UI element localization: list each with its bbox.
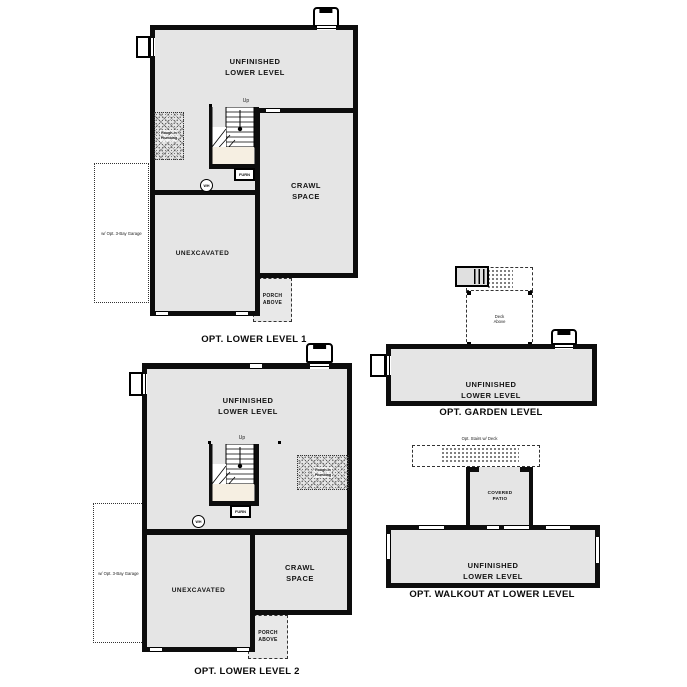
window bbox=[317, 25, 336, 30]
window bbox=[555, 344, 573, 349]
wall bbox=[142, 529, 352, 535]
opt-deck-strip bbox=[412, 445, 540, 467]
window bbox=[236, 311, 248, 316]
opt-garage-outline: w/ Opt. 3-Bay Garage bbox=[94, 163, 149, 303]
rough-in-label: Rough-In Plumbing bbox=[160, 130, 178, 141]
deck-above-label: Deck Above bbox=[494, 314, 506, 324]
room-label-covered-patio: COVERED PATIO bbox=[470, 490, 530, 503]
window bbox=[266, 108, 280, 113]
post-dot bbox=[209, 104, 212, 107]
window-well-icon bbox=[129, 372, 143, 396]
up-label: Up bbox=[230, 435, 254, 441]
window bbox=[487, 525, 499, 530]
wall bbox=[466, 467, 479, 472]
window bbox=[237, 647, 249, 652]
water-heater-label: WH bbox=[204, 184, 210, 188]
fireplace-icon bbox=[551, 329, 577, 345]
room-label-crawl: CRAWL SPACE bbox=[260, 563, 340, 585]
window-well-icon bbox=[136, 36, 150, 58]
water-heater-icon: WH bbox=[192, 515, 205, 528]
window bbox=[142, 374, 147, 394]
room-label-unexcavated: UNEXCAVATED bbox=[150, 249, 255, 258]
fireplace-icon bbox=[306, 343, 333, 363]
staircase-icon bbox=[209, 107, 259, 169]
deck-dots bbox=[441, 447, 519, 464]
rough-in-plumbing-area: Rough-In Plumbing bbox=[297, 455, 349, 490]
stairs-option-label: Opt. Stairs w/ Deck bbox=[437, 436, 522, 441]
deck-stairs-icon bbox=[455, 266, 489, 287]
floorplan-sheet: w/ Opt. 3-Bay Garage PORCH ABOVE Rou bbox=[0, 0, 687, 687]
deck-above-area: Deck Above bbox=[466, 290, 533, 347]
room-label-unfinished: UNFINISHED LOWER LEVEL bbox=[411, 380, 571, 402]
window bbox=[310, 363, 329, 369]
room-label-unexcavated: UNEXCAVATED bbox=[146, 586, 251, 595]
window-well-icon bbox=[370, 354, 386, 377]
window bbox=[150, 647, 162, 652]
window bbox=[386, 356, 391, 375]
wall bbox=[150, 25, 155, 316]
garage-option-label: w/ Opt. 3-Bay Garage bbox=[98, 571, 139, 576]
room-label-unfinished: UNFINISHED LOWER LEVEL bbox=[413, 561, 573, 583]
furnace-box: FURN bbox=[234, 168, 255, 181]
post-dot bbox=[208, 441, 211, 444]
room-label-unfinished: UNFINISHED LOWER LEVEL bbox=[168, 396, 328, 418]
window bbox=[595, 537, 600, 563]
porch-above-label: PORCH ABOVE bbox=[263, 293, 283, 307]
wall bbox=[353, 25, 358, 278]
window bbox=[150, 38, 155, 56]
wall bbox=[250, 610, 352, 615]
furnace-box: FURN bbox=[230, 505, 251, 518]
staircase-icon bbox=[209, 444, 259, 506]
water-heater-icon: WH bbox=[200, 179, 213, 192]
deck-dots bbox=[487, 269, 513, 288]
rough-in-plumbing-area: Rough-In Plumbing bbox=[154, 112, 184, 160]
opt-garage-outline: w/ Opt. 3-Bay Garage bbox=[93, 503, 144, 643]
plan-caption: OPT. WALKOUT AT LOWER LEVEL bbox=[372, 589, 612, 600]
post-dot bbox=[278, 441, 281, 444]
garage-option-label: w/ Opt. 3-Bay Garage bbox=[101, 231, 142, 236]
wall bbox=[142, 363, 147, 652]
window bbox=[386, 534, 391, 559]
room-label-unfinished: UNFINISHED LOWER LEVEL bbox=[175, 57, 335, 79]
window bbox=[250, 363, 262, 369]
fireplace-icon bbox=[313, 7, 339, 27]
up-label: Up bbox=[234, 98, 258, 104]
window bbox=[419, 525, 444, 530]
water-heater-label: WH bbox=[196, 520, 202, 524]
wall bbox=[255, 273, 358, 278]
porch-above-label: PORCH ABOVE bbox=[258, 630, 278, 644]
window bbox=[546, 525, 570, 530]
room-label-crawl: CRAWL SPACE bbox=[266, 181, 346, 203]
rough-in-label: Rough-In Plumbing bbox=[314, 467, 332, 478]
furnace-label: FURN bbox=[239, 172, 250, 177]
wall bbox=[520, 467, 533, 472]
furnace-label: FURN bbox=[235, 509, 246, 514]
plan-caption: OPT. LOWER LEVEL 2 bbox=[147, 666, 347, 677]
window bbox=[156, 311, 168, 316]
plan-caption: OPT. GARDEN LEVEL bbox=[391, 407, 591, 418]
window bbox=[504, 525, 529, 530]
